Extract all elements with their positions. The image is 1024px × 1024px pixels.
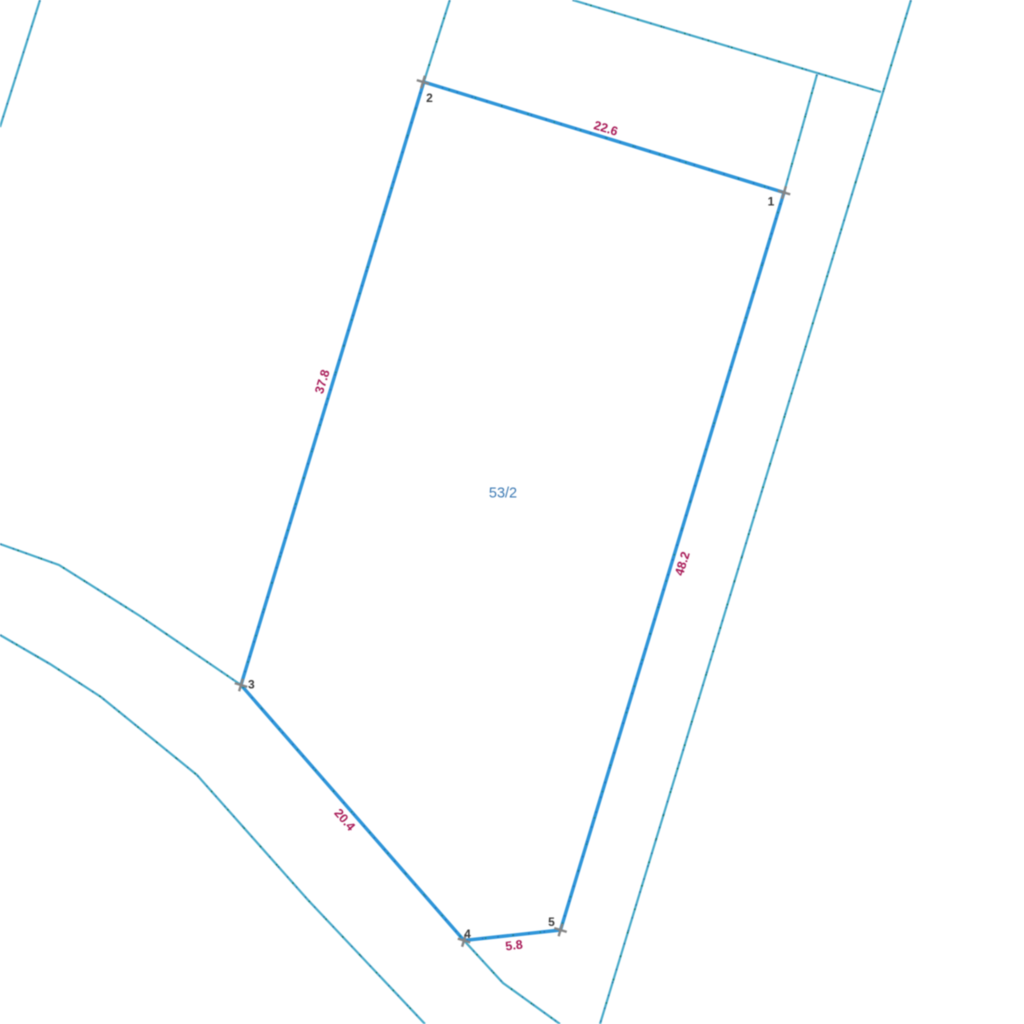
svg-text:1: 1 [768, 195, 775, 209]
svg-text:2: 2 [426, 91, 433, 105]
svg-text:4: 4 [464, 927, 471, 941]
svg-text:5.8: 5.8 [505, 937, 524, 953]
svg-text:5: 5 [548, 915, 555, 929]
svg-text:53/2: 53/2 [489, 486, 517, 502]
svg-text:3: 3 [248, 678, 255, 692]
